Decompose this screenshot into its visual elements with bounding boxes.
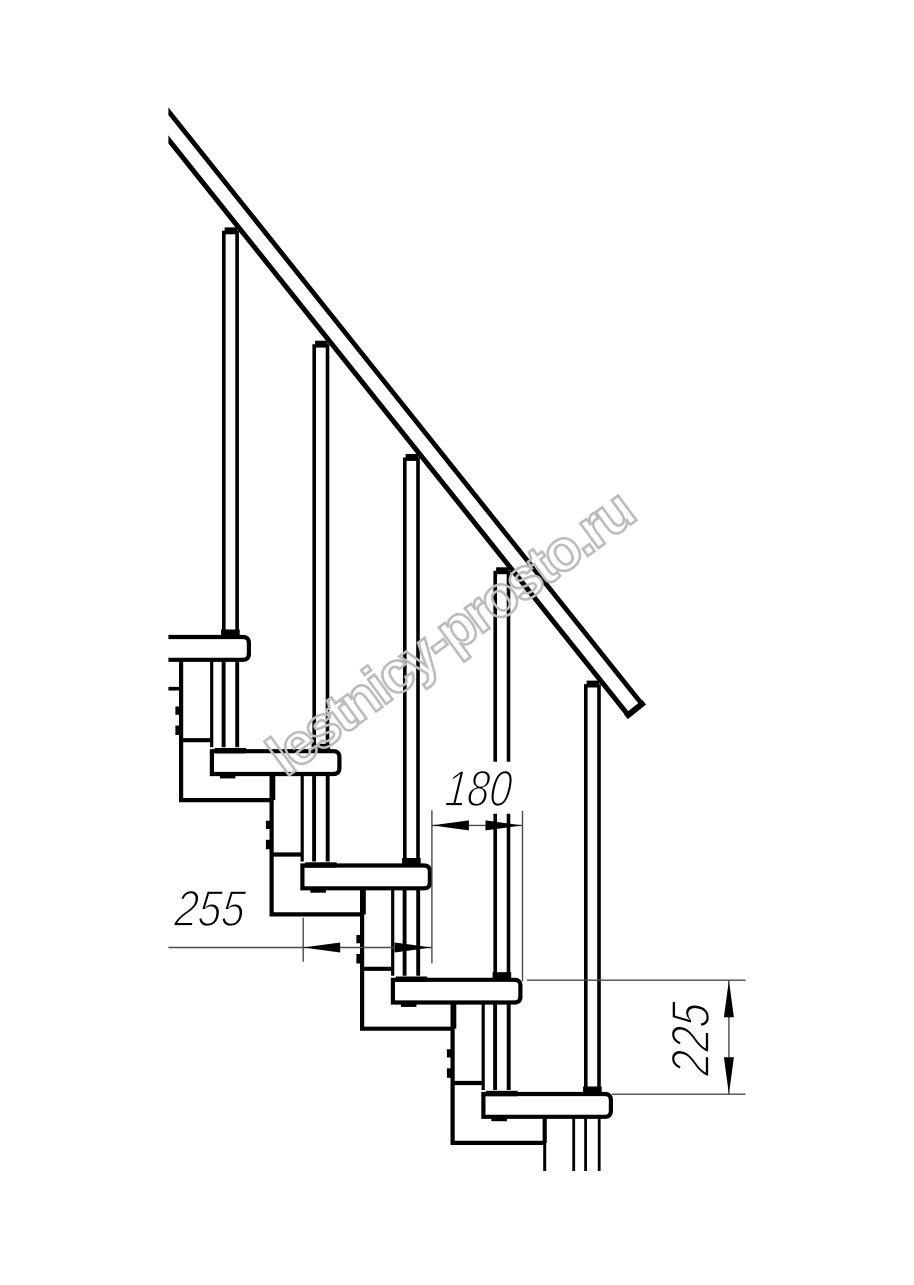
svg-text:255: 255 [172,880,249,937]
svg-text:180: 180 [443,760,515,817]
svg-text:225: 225 [662,999,721,1078]
